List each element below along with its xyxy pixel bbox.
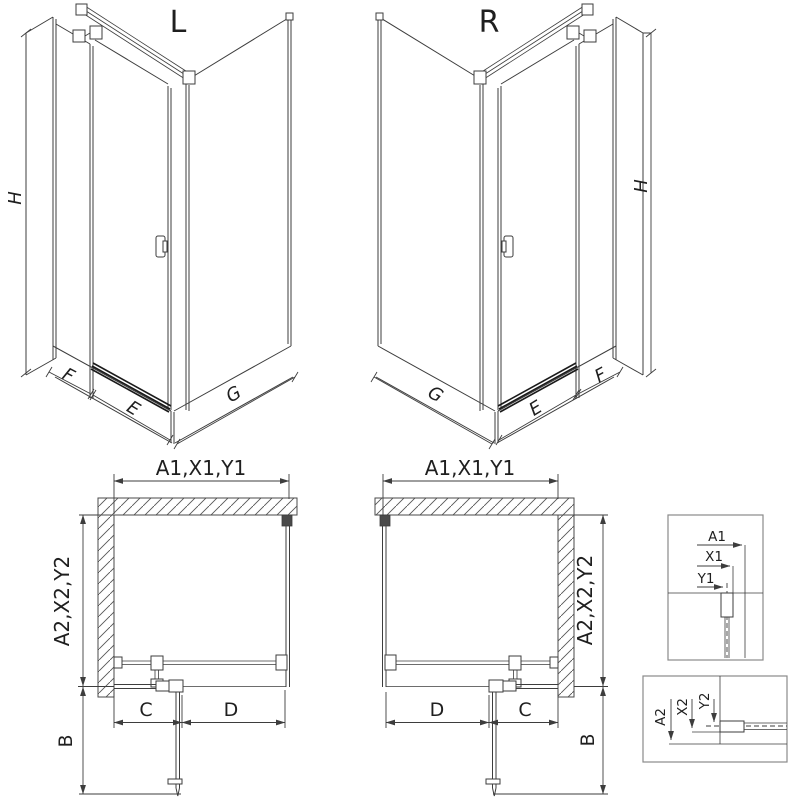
dim-label-c: C xyxy=(139,699,152,721)
bar-wall-cap xyxy=(582,4,593,15)
corner-post xyxy=(480,84,483,411)
detail-box-profile-side: A2 X2 Y2 xyxy=(643,676,787,762)
wall-profile xyxy=(720,721,744,732)
dim-label-g: G xyxy=(222,382,245,407)
dim-label-g: G xyxy=(424,382,447,407)
front-face xyxy=(386,680,558,692)
front-face xyxy=(114,680,286,692)
variant-title-right: R xyxy=(479,5,500,40)
technical-drawing-page: L H F E G xyxy=(0,0,800,800)
side-wall-slab xyxy=(26,17,56,375)
dim-label-a1x1y1: A1,X1,Y1 xyxy=(156,456,247,480)
wall-top xyxy=(98,498,297,515)
iso-left-view: L H F E G xyxy=(5,4,298,449)
detail-label-y2: Y2 xyxy=(697,693,713,711)
dim-cd-left: C D xyxy=(114,690,285,728)
dim-label-d: D xyxy=(430,699,445,721)
glass-top-cap xyxy=(286,13,293,20)
detail-label-a2: A2 xyxy=(653,708,669,726)
shower-tray xyxy=(376,346,616,444)
dim-label-c: C xyxy=(518,699,531,721)
side-panel-g xyxy=(378,16,480,346)
reference-lines xyxy=(733,545,745,658)
wall-left xyxy=(98,515,114,697)
dim-label-a1x1y1: A1,X1,Y1 xyxy=(425,456,516,480)
bar-corner-connector xyxy=(183,71,195,84)
dim-a2-b-left: A2,X2,Y2 B xyxy=(50,515,181,794)
bar-panel-clamp xyxy=(584,30,596,42)
door-handle xyxy=(168,779,182,784)
detail-box-profile-top: A1 X1 Y1 xyxy=(668,515,763,660)
dim-label-h: H xyxy=(631,179,652,193)
dim-label-f: F xyxy=(59,364,79,388)
bar-wall-bracket xyxy=(550,657,558,668)
dim-label-a2x2y2: A2,X2,Y2 xyxy=(573,555,597,646)
open-door xyxy=(168,692,182,796)
open-door xyxy=(486,692,500,796)
dim-a2-b-right: A2,X2,Y2 B xyxy=(493,515,608,794)
front-panel-connector xyxy=(503,681,516,691)
bar-panel-clamp xyxy=(73,30,85,42)
plan-left-view: A1,X1,Y1 A2,X2,Y2 B C D xyxy=(50,456,297,796)
reference-lines xyxy=(669,732,787,744)
dim-g-right: G xyxy=(371,372,495,449)
bar-t-connector xyxy=(567,26,579,39)
wall-right xyxy=(558,515,574,697)
dim-f-left: F xyxy=(46,364,94,399)
dim-label-h: H xyxy=(5,191,26,205)
wall-top xyxy=(375,498,574,515)
bar-wall-cap xyxy=(76,4,87,15)
dim-label-b: B xyxy=(577,733,599,746)
side-panel-g xyxy=(189,16,291,346)
bar-t-connector xyxy=(151,656,163,670)
detail-label-y1: Y1 xyxy=(697,571,715,587)
side-wall-slab xyxy=(613,17,643,375)
stabilizer-bar xyxy=(114,655,287,687)
door-handle-tab xyxy=(502,241,506,252)
front-panel-connector xyxy=(156,681,169,691)
dim-label-d: D xyxy=(224,699,239,721)
bar-wall-bracket xyxy=(114,657,122,668)
fixed-panel-f xyxy=(56,24,93,399)
shower-enclosure-diagram: L H F E G xyxy=(0,0,800,800)
glass-top-cap xyxy=(376,13,383,20)
dim-f-right: F xyxy=(575,364,623,399)
variant-title-left: L xyxy=(170,5,187,40)
door-handle xyxy=(486,779,500,784)
dim-h-left: H xyxy=(5,29,31,377)
door-pivot-block xyxy=(169,680,183,692)
shower-door-glass xyxy=(498,40,574,410)
shower-door-glass xyxy=(95,40,171,410)
door-pivot-block xyxy=(489,680,503,692)
bar-glass-clamp xyxy=(385,655,396,670)
glass-wall-bracket xyxy=(380,515,390,526)
iso-right-view: R H F E G xyxy=(371,4,656,449)
fixed-panel-f xyxy=(576,24,613,399)
detail-label-x1: X1 xyxy=(705,549,723,565)
glass-wall-bracket xyxy=(282,515,292,526)
corner-post xyxy=(186,84,189,411)
detail-label-x2: X2 xyxy=(675,698,691,716)
dim-label-b: B xyxy=(55,734,77,747)
dim-g-left: G xyxy=(174,372,298,449)
dim-label-a2x2y2: A2,X2,Y2 xyxy=(50,556,74,647)
plan-right-view: A1,X1,Y1 A2,X2,Y2 B D C xyxy=(375,456,608,796)
bar-t-connector xyxy=(509,656,521,670)
bar-t-connector xyxy=(90,26,102,39)
shower-tray xyxy=(53,346,293,444)
door-handle-tab xyxy=(163,241,167,252)
wall-profile xyxy=(721,593,733,617)
detail-label-a1: A1 xyxy=(708,529,726,545)
dim-cd-right: D C xyxy=(386,690,558,728)
stabilizer-bar xyxy=(385,655,558,687)
bar-glass-clamp xyxy=(276,655,287,670)
dim-label-f: F xyxy=(591,364,611,388)
bar-corner-connector xyxy=(474,71,486,84)
